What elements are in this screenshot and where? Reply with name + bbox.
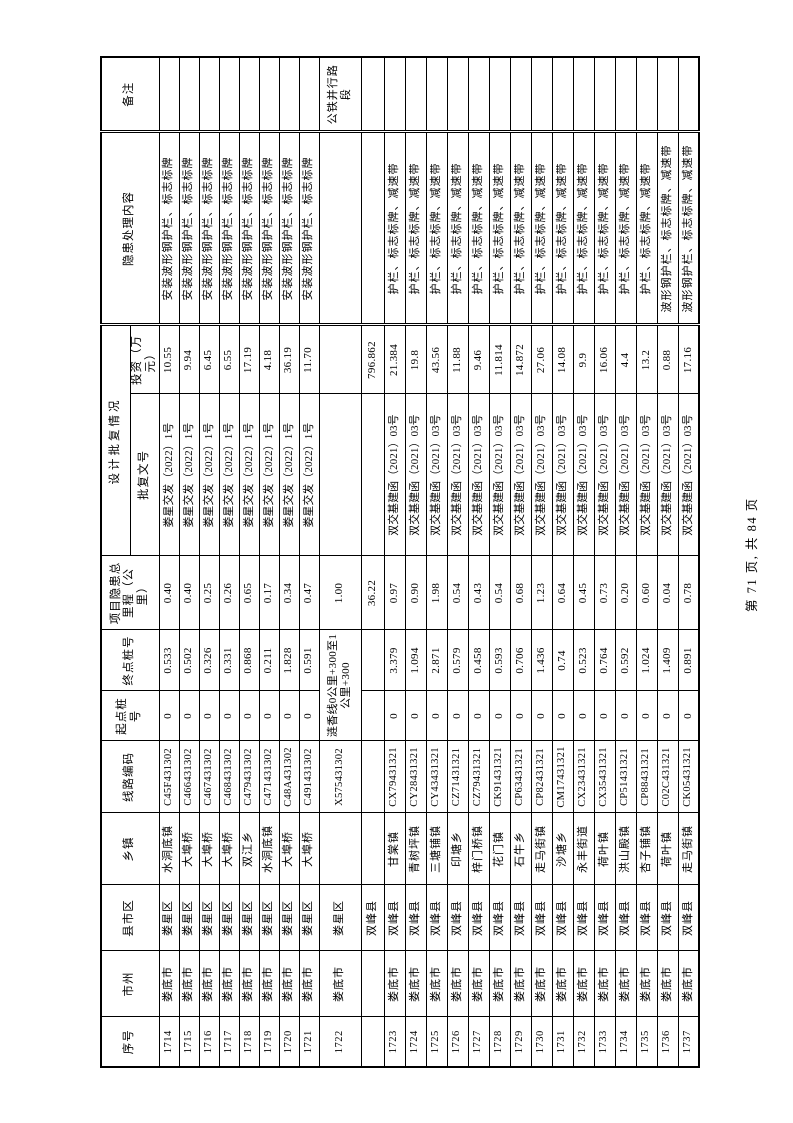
table-cell: 0.579 — [447, 630, 468, 691]
table-cell — [552, 57, 573, 132]
table-cell: 1.094 — [405, 630, 426, 691]
table-row: 1733娄底市双峰县荷叶镇CX3543132100.7640.73双交基建函（2… — [594, 57, 615, 1067]
table-cell: 36.22 — [361, 556, 384, 630]
table-cell: 1732 — [573, 1017, 594, 1067]
table-cell: 双峰县 — [678, 885, 699, 951]
table-cell — [468, 57, 489, 132]
table-cell: 娄星区 — [279, 885, 299, 951]
table-cell: 1736 — [657, 1017, 678, 1067]
table-cell: 安装波形钢护栏、标志标牌 — [159, 132, 179, 325]
table-cell: 4.4 — [615, 325, 636, 394]
table-cell: CP51431321 — [615, 741, 636, 813]
table-cell: 大埠桥 — [299, 813, 319, 885]
table-cell: 娄底市 — [259, 951, 279, 1017]
table-cell: 娄底市 — [489, 951, 510, 1017]
table-cell: 双峰县 — [361, 885, 384, 951]
table-cell: 0 — [657, 691, 678, 741]
table-cell: 娄底市 — [159, 951, 179, 1017]
table-cell: 娄底市 — [636, 951, 657, 1017]
table-cell: C491431302 — [299, 741, 319, 813]
table-cell: 双峰县 — [531, 885, 552, 951]
header-cell: 起点桩号 — [101, 691, 159, 741]
table-row: 1730娄底市双峰县走马街镇CP8243132101.4361.23双交基建函（… — [531, 57, 552, 1067]
table-cell: 大埠桥 — [219, 813, 239, 885]
table-cell — [319, 813, 361, 885]
table-cell: 娄星区 — [319, 885, 361, 951]
table-cell: 0.891 — [678, 630, 699, 691]
group-header-cell: 设计批复情况 — [101, 325, 130, 556]
table-cell: 14.08 — [552, 325, 573, 394]
table-cell: 0 — [636, 691, 657, 741]
table-cell: 荷叶镇 — [594, 813, 615, 885]
table-cell: CX35431321 — [594, 741, 615, 813]
table-cell — [199, 57, 219, 132]
table-cell: 双交基建函（2021）03号 — [531, 394, 552, 556]
table-cell — [510, 57, 531, 132]
table-cell: 796.862 — [361, 325, 384, 394]
table-cell: 双峰县 — [510, 885, 531, 951]
table-cell: 安装波形钢护栏、标志标牌 — [279, 132, 299, 325]
table-cell: 双交基建函（2021）03号 — [615, 394, 636, 556]
table-cell: 永丰街道 — [573, 813, 594, 885]
table-cell: 1.00 — [319, 556, 361, 630]
table-cell: 娄星交发（2022）1号 — [179, 394, 199, 556]
table-cell — [319, 394, 361, 556]
table-cell — [384, 57, 405, 132]
table-cell: C45F431302 — [159, 741, 179, 813]
table-cell — [657, 57, 678, 132]
table-cell — [279, 57, 299, 132]
table-cell: 娄星交发（2022）1号 — [279, 394, 299, 556]
table-cell: 0.211 — [259, 630, 279, 691]
table-cell: 17.16 — [678, 325, 699, 394]
table-cell: 娄星区 — [179, 885, 199, 951]
table-cell — [405, 57, 426, 132]
table-cell: 护栏、标志标牌、减速带 — [468, 132, 489, 325]
table-cell: 0 — [468, 691, 489, 741]
table-row: 1721娄底市娄星区大埠桥C49143130200.5910.47娄星交发（20… — [299, 57, 319, 1067]
table-cell: 0.45 — [573, 556, 594, 630]
table-cell: 1716 — [199, 1017, 219, 1067]
table-cell: 双交基建函（2021）03号 — [468, 394, 489, 556]
table-cell — [299, 57, 319, 132]
table-cell: 3.379 — [384, 630, 405, 691]
table-cell: CP88431321 — [636, 741, 657, 813]
table-cell: CK91431321 — [489, 741, 510, 813]
table-cell: 9.9 — [573, 325, 594, 394]
table-cell: 娄底市 — [552, 951, 573, 1017]
table-cell: 护栏、标志标牌、减速带 — [573, 132, 594, 325]
table-cell: 11.814 — [489, 325, 510, 394]
table-cell: 双峰县 — [615, 885, 636, 951]
table-cell: 双峰县 — [405, 885, 426, 951]
table-cell: 1718 — [239, 1017, 259, 1067]
header-cell: 备注 — [101, 57, 159, 132]
table-cell: 0.78 — [678, 556, 699, 630]
table-header: 序号市州县市区乡镇线路编码起点桩号终点桩号项目隐患总里程（公里）设计批复情况隐患… — [101, 57, 159, 1067]
table-cell: 涟香线0公里+300至1公里+300 — [319, 630, 361, 741]
table-cell: 0.43 — [468, 556, 489, 630]
table-cell: 0 — [384, 691, 405, 741]
table-cell: 甘棠镇 — [384, 813, 405, 885]
table-cell: 0 — [159, 691, 179, 741]
table-cell: CP82431321 — [531, 741, 552, 813]
table-cell — [573, 57, 594, 132]
table-cell: C466431302 — [179, 741, 199, 813]
table-cell: CZ71431321 — [447, 741, 468, 813]
table-cell — [636, 57, 657, 132]
table-cell: 娄星交发（2022）1号 — [239, 394, 259, 556]
table-cell: 1.409 — [657, 630, 678, 691]
table-cell: 娄底市 — [179, 951, 199, 1017]
table-cell: 娄底市 — [573, 951, 594, 1017]
table-cell: 双交基建函（2021）03号 — [678, 394, 699, 556]
table-cell — [426, 57, 447, 132]
table-cell — [361, 813, 384, 885]
table-row: 1725娄底市双峰县三塘铺镇CY4343132102.8711.98双交基建函（… — [426, 57, 447, 1067]
table-cell: 0.65 — [239, 556, 259, 630]
table-cell: 娄底市 — [510, 951, 531, 1017]
table-cell: 0.97 — [384, 556, 405, 630]
table-cell: 36.19 — [279, 325, 299, 394]
table-cell: 双交基建函（2021）03号 — [573, 394, 594, 556]
table-cell: 0 — [259, 691, 279, 741]
table-cell: 娄星交发（2022）1号 — [299, 394, 319, 556]
table-cell: 11.88 — [447, 325, 468, 394]
table-cell — [361, 132, 384, 325]
table-cell: 0.74 — [552, 630, 573, 691]
table-cell — [361, 691, 384, 741]
table-cell: 0.54 — [489, 556, 510, 630]
table-cell: 三塘铺镇 — [426, 813, 447, 885]
table-cell: 0 — [279, 691, 299, 741]
table-row: 1737娄底市双峰县走马街镇CK0543132100.8910.78双交基建函（… — [678, 57, 699, 1067]
table-cell: 1722 — [319, 1017, 361, 1067]
table-cell: 0.533 — [159, 630, 179, 691]
table-cell: 水洞底镇 — [159, 813, 179, 885]
table-cell: 1714 — [159, 1017, 179, 1067]
table-row: 1732娄底市双峰县永丰街道CX2343132100.5230.45双交基建函（… — [573, 57, 594, 1067]
table-cell: 0 — [510, 691, 531, 741]
table-cell: 双峰县 — [573, 885, 594, 951]
header-cell: 线路编码 — [101, 741, 159, 813]
header-cell: 投资（万元） — [130, 325, 159, 394]
table-cell: 0.593 — [489, 630, 510, 691]
table-row: 1723娄底市双峰县甘棠镇CX7943132103.3790.97双交基建函（2… — [384, 57, 405, 1067]
table-cell: 0.20 — [615, 556, 636, 630]
table-cell: 双峰县 — [636, 885, 657, 951]
table-cell — [361, 57, 384, 132]
table-cell: 1729 — [510, 1017, 531, 1067]
table-cell — [179, 57, 199, 132]
table-cell: 2.871 — [426, 630, 447, 691]
table-cell: 0.88 — [657, 325, 678, 394]
table-cell: 波形钢护栏、标志标牌、减速带 — [657, 132, 678, 325]
table-cell: 13.2 — [636, 325, 657, 394]
table-cell: 0.592 — [615, 630, 636, 691]
table-cell: 双交基建函（2021）03号 — [594, 394, 615, 556]
table-row: 1728娄底市双峰县花门镇CK9143132100.5930.54双交基建函（2… — [489, 57, 510, 1067]
table-cell: 石牛乡 — [510, 813, 531, 885]
table-cell: 0 — [489, 691, 510, 741]
table-cell: 洪山殿镇 — [615, 813, 636, 885]
table-cell: C471431302 — [259, 741, 279, 813]
table-cell: 娄星交发（2022）1号 — [159, 394, 179, 556]
table-cell: 荷叶镇 — [657, 813, 678, 885]
table-cell: 安装波形钢护栏、标志标牌 — [259, 132, 279, 325]
table-cell: 娄底市 — [279, 951, 299, 1017]
table-cell — [361, 394, 384, 556]
table-cell: 娄星区 — [299, 885, 319, 951]
table-cell: 0.26 — [219, 556, 239, 630]
table-cell: 16.06 — [594, 325, 615, 394]
table-cell: C48A431302 — [279, 741, 299, 813]
table-cell: 护栏、标志标牌、减速带 — [531, 132, 552, 325]
document-page: 序号市州县市区乡镇线路编码起点桩号终点桩号项目隐患总里程（公里）设计批复情况隐患… — [0, 0, 793, 1123]
table-cell: CY43431321 — [426, 741, 447, 813]
table-cell: 0 — [678, 691, 699, 741]
table-cell: 娄底市 — [199, 951, 219, 1017]
table-cell: 0.25 — [199, 556, 219, 630]
table-cell: 0 — [615, 691, 636, 741]
table-cell: 双交基建函（2021）03号 — [489, 394, 510, 556]
table-cell: 1737 — [678, 1017, 699, 1067]
page-number: 第 71 页, 共 84 页 — [741, 497, 760, 612]
table-cell: 双峰县 — [552, 885, 573, 951]
table-cell: 双江乡 — [239, 813, 259, 885]
table-cell — [447, 57, 468, 132]
table-cell: CP63431321 — [510, 741, 531, 813]
header-cell: 市州 — [101, 951, 159, 1017]
table-cell: 1724 — [405, 1017, 426, 1067]
table-row: 1731娄底市双峰县沙塘乡CM1743132100.740.64双交基建函（20… — [552, 57, 573, 1067]
table-cell: 1728 — [489, 1017, 510, 1067]
table-cell: 娄星交发（2022）1号 — [259, 394, 279, 556]
table-cell: 双峰县 — [468, 885, 489, 951]
table-cell: 1720 — [279, 1017, 299, 1067]
table-cell: 波形钢护栏、标志标牌、减速带 — [678, 132, 699, 325]
table-cell: 娄底市 — [594, 951, 615, 1017]
table-cell: C479431302 — [239, 741, 259, 813]
table-cell: 公铁并行路段 — [319, 57, 361, 132]
table-cell: 娄星区 — [239, 885, 259, 951]
table-cell: 0 — [199, 691, 219, 741]
table-cell: 0.706 — [510, 630, 531, 691]
table-row: 1735娄底市双峰县杏子铺镇CP8843132101.0240.60双交基建函（… — [636, 57, 657, 1067]
table-cell: 双峰县 — [384, 885, 405, 951]
table-row: 双峰县36.22796.862 — [361, 57, 384, 1067]
table-cell: 娄星区 — [199, 885, 219, 951]
table-cell: 娄底市 — [319, 951, 361, 1017]
table-cell: 1727 — [468, 1017, 489, 1067]
table-cell: 双交基建函（2021）03号 — [447, 394, 468, 556]
table-cell: 0.04 — [657, 556, 678, 630]
table-cell: 1734 — [615, 1017, 636, 1067]
table-body: 1714娄底市娄星区水洞底镇C45F43130200.5330.40娄星交发（2… — [159, 57, 699, 1067]
table-cell: 安装波形钢护栏、标志标牌 — [179, 132, 199, 325]
table-cell: 沙塘乡 — [552, 813, 573, 885]
table-cell: 护栏、标志标牌、减速带 — [510, 132, 531, 325]
table-cell: 0.458 — [468, 630, 489, 691]
table-row: 1734娄底市双峰县洪山殿镇CP5143132100.5920.20双交基建函（… — [615, 57, 636, 1067]
table-cell — [319, 132, 361, 325]
table-cell: 娄星区 — [159, 885, 179, 951]
table-cell: 护栏、标志标牌、减速带 — [489, 132, 510, 325]
table-cell: 1723 — [384, 1017, 405, 1067]
table-cell: 0 — [219, 691, 239, 741]
table-cell: CX79431321 — [384, 741, 405, 813]
table-cell: 1726 — [447, 1017, 468, 1067]
table-row: 1719娄底市娄星区水洞底镇C47143130200.2110.17娄星交发（2… — [259, 57, 279, 1067]
table-cell: 0.60 — [636, 556, 657, 630]
table-cell: 9.46 — [468, 325, 489, 394]
table-cell: 1717 — [219, 1017, 239, 1067]
table-row: 1727娄底市双峰县梓门桥镇CZ7943132100.4580.43双交基建函（… — [468, 57, 489, 1067]
table-cell: 大埠桥 — [199, 813, 219, 885]
table-cell: 梓门桥镇 — [468, 813, 489, 885]
table-cell — [594, 57, 615, 132]
table-cell: 1.98 — [426, 556, 447, 630]
table-cell: 0 — [239, 691, 259, 741]
table-row: 1718娄底市娄星区双江乡C47943130200.8680.65娄星交发（20… — [239, 57, 259, 1067]
table-cell: 0 — [573, 691, 594, 741]
table-cell: 0.523 — [573, 630, 594, 691]
table-cell: 1735 — [636, 1017, 657, 1067]
table-cell: 娄星交发（2022）1号 — [219, 394, 239, 556]
header-cell: 终点桩号 — [101, 630, 159, 691]
table-cell: 双交基建函（2021）03号 — [405, 394, 426, 556]
header-cell: 项目隐患总里程（公里） — [101, 556, 159, 630]
table-cell: CY28431321 — [405, 741, 426, 813]
table-cell — [615, 57, 636, 132]
table-cell: 0 — [299, 691, 319, 741]
table-cell: 娄底市 — [405, 951, 426, 1017]
table-cell: 1721 — [299, 1017, 319, 1067]
table-cell: 娄底市 — [678, 951, 699, 1017]
table-cell: 娄底市 — [239, 951, 259, 1017]
table-cell: 0.47 — [299, 556, 319, 630]
table-cell: 双交基建函（2021）03号 — [552, 394, 573, 556]
table-cell: 27.06 — [531, 325, 552, 394]
table-cell — [531, 57, 552, 132]
table-cell: CX23431321 — [573, 741, 594, 813]
table-cell: 护栏、标志标牌、减速带 — [636, 132, 657, 325]
table-cell: 双交基建函（2021）03号 — [510, 394, 531, 556]
table-cell: 0 — [179, 691, 199, 741]
table-cell: 水洞底镇 — [259, 813, 279, 885]
table-cell: 19.8 — [405, 325, 426, 394]
table-cell: 43.56 — [426, 325, 447, 394]
header-cell: 县市区 — [101, 885, 159, 951]
table-cell: 0 — [447, 691, 468, 741]
rotated-table-container: 序号市州县市区乡镇线路编码起点桩号终点桩号项目隐患总里程（公里）设计批复情况隐患… — [100, 58, 700, 1068]
table-row: 1729娄底市双峰县石牛乡CP6343132100.7060.68双交基建函（2… — [510, 57, 531, 1067]
table-cell: 双交基建函（2021）03号 — [426, 394, 447, 556]
table-cell: 娄底市 — [426, 951, 447, 1017]
table-cell: 杏子铺镇 — [636, 813, 657, 885]
table-cell: 双交基建函（2021）03号 — [384, 394, 405, 556]
table-cell: 娄星区 — [259, 885, 279, 951]
table-cell: 0.34 — [279, 556, 299, 630]
table-cell: 1715 — [179, 1017, 199, 1067]
header-cell: 乡镇 — [101, 813, 159, 885]
table-cell: 护栏、标志标牌、减速带 — [594, 132, 615, 325]
table-cell: 1.436 — [531, 630, 552, 691]
table-cell: 0.326 — [199, 630, 219, 691]
table-cell: 安装波形钢护栏、标志标牌 — [219, 132, 239, 325]
table-cell: 娄底市 — [384, 951, 405, 1017]
table-cell: 安装波形钢护栏、标志标牌 — [239, 132, 259, 325]
table-cell: 娄底市 — [615, 951, 636, 1017]
table-cell: 娄底市 — [299, 951, 319, 1017]
table-cell: 1.23 — [531, 556, 552, 630]
table-cell — [239, 57, 259, 132]
header-cell: 序号 — [101, 1017, 159, 1067]
table-cell: 6.45 — [199, 325, 219, 394]
table-cell: 0.68 — [510, 556, 531, 630]
table-cell: C02C431321 — [657, 741, 678, 813]
table-cell: 大埠桥 — [179, 813, 199, 885]
table-cell: 双峰县 — [426, 885, 447, 951]
table-cell: 0 — [531, 691, 552, 741]
table-cell: 双峰县 — [447, 885, 468, 951]
table-cell: 娄星交发（2022）1号 — [199, 394, 219, 556]
table-cell — [678, 57, 699, 132]
table-cell: 0.40 — [179, 556, 199, 630]
table-row: 1717娄底市娄星区大埠桥C46843130200.3310.26娄星交发（20… — [219, 57, 239, 1067]
table-cell: 安装波形钢护栏、标志标牌 — [299, 132, 319, 325]
table-row: 1736娄底市双峰县荷叶镇C02C43132101.4090.04双交基建函（2… — [657, 57, 678, 1067]
table-cell: 0 — [405, 691, 426, 741]
table-cell — [219, 57, 239, 132]
table-cell — [489, 57, 510, 132]
table-cell: 双峰县 — [594, 885, 615, 951]
table-cell: 0.40 — [159, 556, 179, 630]
table-cell: 0 — [594, 691, 615, 741]
table-row: 1714娄底市娄星区水洞底镇C45F43130200.5330.40娄星交发（2… — [159, 57, 179, 1067]
table-row: 1715娄底市娄星区大埠桥C46643130200.5020.40娄星交发（20… — [179, 57, 199, 1067]
table-cell: 1719 — [259, 1017, 279, 1067]
table-cell: 护栏、标志标牌、减速带 — [552, 132, 573, 325]
table-row: 1722娄底市娄星区X575431302涟香线0公里+300至1公里+3001.… — [319, 57, 361, 1067]
table-cell: 娄底市 — [219, 951, 239, 1017]
table-cell: 14.872 — [510, 325, 531, 394]
table-cell: 护栏、标志标牌、减速带 — [615, 132, 636, 325]
table-cell: 0.502 — [179, 630, 199, 691]
table-cell — [159, 57, 179, 132]
table-cell: 双交基建函（2021）03号 — [657, 394, 678, 556]
table-cell: 0.54 — [447, 556, 468, 630]
table-cell: 印塘乡 — [447, 813, 468, 885]
table-cell: 护栏、标志标牌、减速带 — [447, 132, 468, 325]
table-cell: 0.331 — [219, 630, 239, 691]
table-cell: 娄星区 — [219, 885, 239, 951]
table-cell: 6.55 — [219, 325, 239, 394]
table-cell: 21.384 — [384, 325, 405, 394]
table-cell: 0.591 — [299, 630, 319, 691]
table-cell: 1733 — [594, 1017, 615, 1067]
table-cell: 0 — [426, 691, 447, 741]
table-cell: 安装波形钢护栏、标志标牌 — [199, 132, 219, 325]
table-cell: 1731 — [552, 1017, 573, 1067]
hazard-table: 序号市州县市区乡镇线路编码起点桩号终点桩号项目隐患总里程（公里）设计批复情况隐患… — [100, 56, 700, 1068]
table-cell: CM17431321 — [552, 741, 573, 813]
table-cell: 10.55 — [159, 325, 179, 394]
table-cell: X575431302 — [319, 741, 361, 813]
header-cell: 批复文号 — [130, 394, 159, 556]
table-cell: 双交基建函（2021）03号 — [636, 394, 657, 556]
table-cell: 0.64 — [552, 556, 573, 630]
